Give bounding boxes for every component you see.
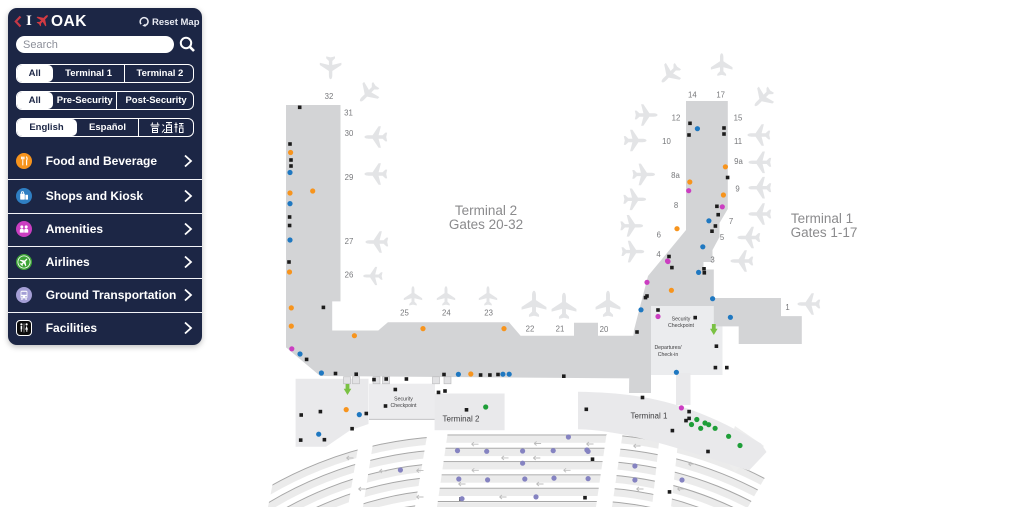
svg-text:32: 32 xyxy=(325,92,334,101)
svg-text:6: 6 xyxy=(657,230,661,239)
svg-text:5: 5 xyxy=(720,233,725,242)
svg-text:Departures/: Departures/ xyxy=(654,345,682,351)
svg-text:14: 14 xyxy=(688,90,697,99)
svg-text:Check-in: Check-in xyxy=(658,352,679,358)
svg-text:4: 4 xyxy=(656,250,661,259)
svg-text:Gates 20-32: Gates 20-32 xyxy=(449,217,523,232)
svg-text:Terminal 2: Terminal 2 xyxy=(443,415,480,424)
svg-text:Security: Security xyxy=(672,317,691,323)
svg-text:11: 11 xyxy=(734,137,742,146)
svg-text:24: 24 xyxy=(442,309,451,318)
svg-text:Checkpoint: Checkpoint xyxy=(391,403,418,409)
svg-text:26: 26 xyxy=(345,271,354,280)
svg-text:8a: 8a xyxy=(671,171,680,180)
svg-text:31: 31 xyxy=(344,108,353,117)
svg-text:7: 7 xyxy=(729,217,733,226)
svg-text:Gates 1-17: Gates 1-17 xyxy=(791,225,858,240)
svg-text:Security: Security xyxy=(394,396,413,402)
svg-text:21: 21 xyxy=(556,324,565,333)
svg-text:30: 30 xyxy=(345,129,354,138)
svg-text:20: 20 xyxy=(600,325,609,334)
svg-text:Terminal 2: Terminal 2 xyxy=(455,203,517,218)
svg-text:15: 15 xyxy=(734,113,743,122)
svg-text:1: 1 xyxy=(785,303,789,312)
svg-text:8: 8 xyxy=(674,201,678,210)
svg-text:25: 25 xyxy=(400,308,409,317)
svg-text:27: 27 xyxy=(345,237,354,246)
svg-text:Checkpoint: Checkpoint xyxy=(668,323,695,329)
svg-text:12: 12 xyxy=(672,113,681,122)
svg-text:29: 29 xyxy=(345,173,354,182)
svg-text:Terminal 1: Terminal 1 xyxy=(791,211,853,226)
svg-text:9: 9 xyxy=(735,184,739,193)
svg-text:Terminal 1: Terminal 1 xyxy=(631,411,668,420)
svg-text:10: 10 xyxy=(662,137,671,146)
svg-text:17: 17 xyxy=(716,90,725,99)
svg-text:9a: 9a xyxy=(734,157,743,166)
svg-text:3: 3 xyxy=(710,255,714,264)
svg-text:22: 22 xyxy=(526,324,535,333)
svg-text:23: 23 xyxy=(484,309,493,318)
